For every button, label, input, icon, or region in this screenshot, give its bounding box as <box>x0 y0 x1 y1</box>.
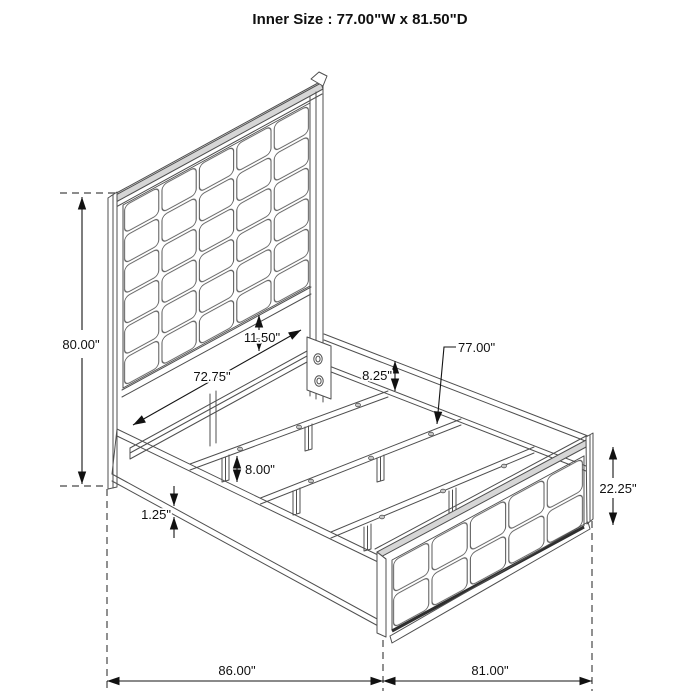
svg-text:8.00": 8.00" <box>245 462 275 477</box>
slat-1 <box>190 391 388 482</box>
dim-base-lip: 1.25" <box>141 486 174 538</box>
dim-overall-height: 80.00" <box>60 193 115 486</box>
svg-text:80.00": 80.00" <box>62 337 100 352</box>
svg-text:22.25": 22.25" <box>599 481 637 496</box>
dim-overall-width: 81.00" <box>383 663 592 681</box>
dimension-diagram-page: Inner Size : 77.00"W x 81.50"D <box>0 0 700 700</box>
footboard-left-post <box>377 552 386 637</box>
svg-text:81.00": 81.00" <box>471 663 509 678</box>
headboard-center-leg <box>210 391 216 446</box>
far-side-rail <box>324 334 588 471</box>
svg-text:8.25": 8.25" <box>362 368 392 383</box>
headboard <box>108 72 327 489</box>
svg-text:86.00": 86.00" <box>218 663 256 678</box>
rail-bracket <box>307 337 331 399</box>
bracket-hole-bottom-inner <box>317 378 321 384</box>
dim-leg-height: 8.00" <box>237 456 275 482</box>
footboard <box>375 433 593 643</box>
headboard-right-post-cap <box>311 72 327 86</box>
svg-text:72.75": 72.75" <box>193 369 231 384</box>
bracket-hole-top-inner <box>316 356 320 362</box>
inner-size-title: Inner Size : 77.00"W x 81.50"D <box>252 11 467 28</box>
svg-text:77.00": 77.00" <box>458 340 496 355</box>
dim-overall-length: 86.00" <box>107 663 383 681</box>
dim-footboard-height: 22.25" <box>599 447 637 525</box>
bed-dimension-drawing: Inner Size : 77.00"W x 81.50"D <box>0 0 700 700</box>
svg-text:1.25": 1.25" <box>141 507 171 522</box>
svg-text:11.50": 11.50" <box>244 330 281 345</box>
